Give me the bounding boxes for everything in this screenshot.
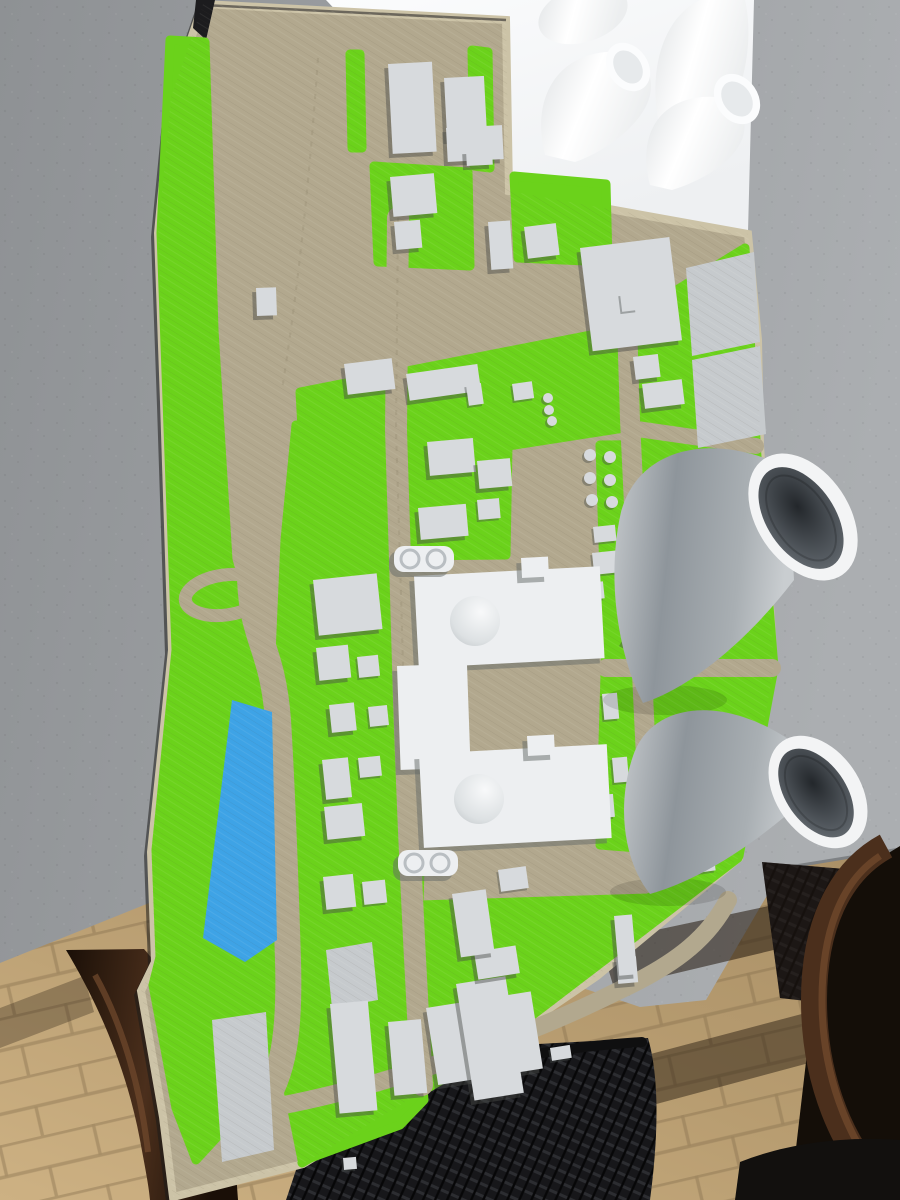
unit-2-north-wing [527,735,555,756]
building [620,292,637,312]
tank [543,393,553,403]
building [612,757,629,783]
photo-3d-printed-site-model [0,0,900,1200]
building [256,287,277,316]
building [427,438,476,476]
building [316,645,351,681]
building [512,381,534,401]
unit-1-containment-dome [450,596,500,646]
unit-2-main-block [419,744,612,848]
building [388,62,437,154]
building [344,358,395,395]
building [322,757,352,799]
building [498,866,529,892]
building [329,702,357,732]
building [390,173,437,217]
unit-1-main-block [414,566,605,668]
building [324,803,365,840]
building [418,504,469,540]
building [388,1019,427,1096]
building [524,223,560,259]
tank [606,496,618,508]
tank [547,416,557,426]
building [394,220,422,250]
building [343,1157,357,1170]
building [642,379,685,409]
unit-1-north-wing [521,557,549,578]
building [357,655,380,678]
building [358,756,382,778]
unit-2-containment-dome [454,774,504,824]
building [477,498,501,520]
tank [544,405,554,415]
scene-canvas [0,0,900,1200]
building [466,383,484,406]
tank [586,494,598,506]
building [323,874,356,910]
tank [604,451,616,463]
tank [584,449,596,461]
building [362,880,387,905]
tank [604,474,616,486]
tank [584,472,596,484]
building [633,354,661,380]
building [466,149,493,166]
building [488,220,513,269]
building [477,458,512,489]
building [593,525,617,543]
building [368,705,389,727]
building [313,573,383,635]
